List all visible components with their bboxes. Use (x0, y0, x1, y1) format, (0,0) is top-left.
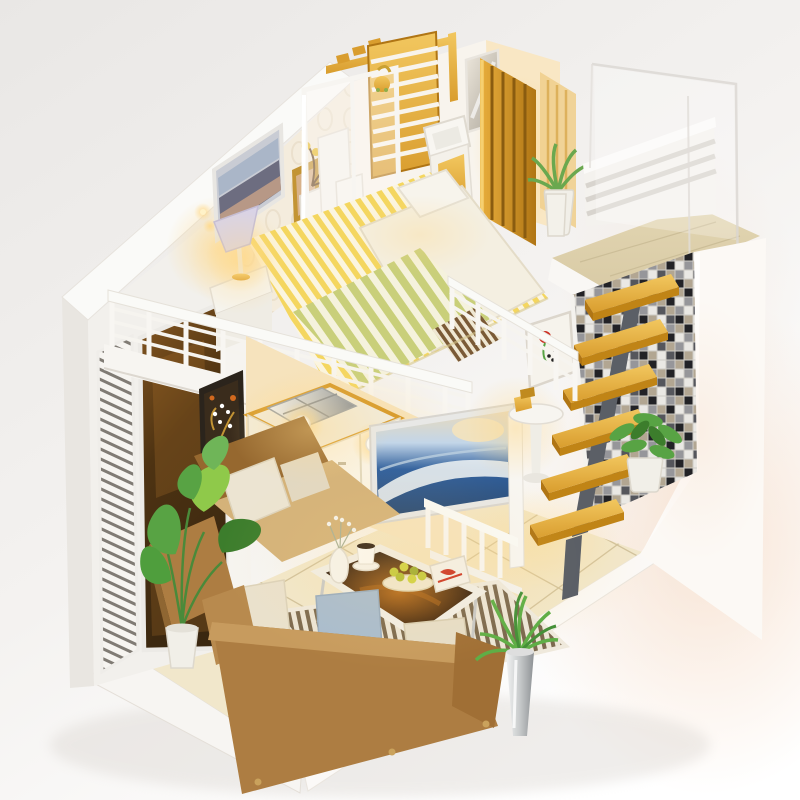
plant-pot (627, 458, 662, 492)
louver-shutter (98, 336, 138, 672)
gold-partition (480, 58, 536, 246)
taro-pot-rim (166, 624, 198, 633)
floor-vase (546, 194, 566, 236)
sofa-foot (255, 779, 262, 786)
living-glow (220, 450, 580, 670)
taro-pot (166, 628, 198, 668)
chrome-vase-rim (506, 648, 534, 656)
lamp-halo (188, 210, 292, 314)
kitchen-halo (230, 375, 390, 485)
dollhouse-product-photo (0, 0, 800, 800)
sofa-foot (389, 749, 396, 756)
sofa-foot (483, 721, 490, 728)
chrome-highlight (514, 660, 516, 728)
bathroom-floor-glow (350, 195, 490, 275)
dollhouse-scene (0, 0, 800, 800)
wall-sconce-bulb (200, 209, 206, 215)
